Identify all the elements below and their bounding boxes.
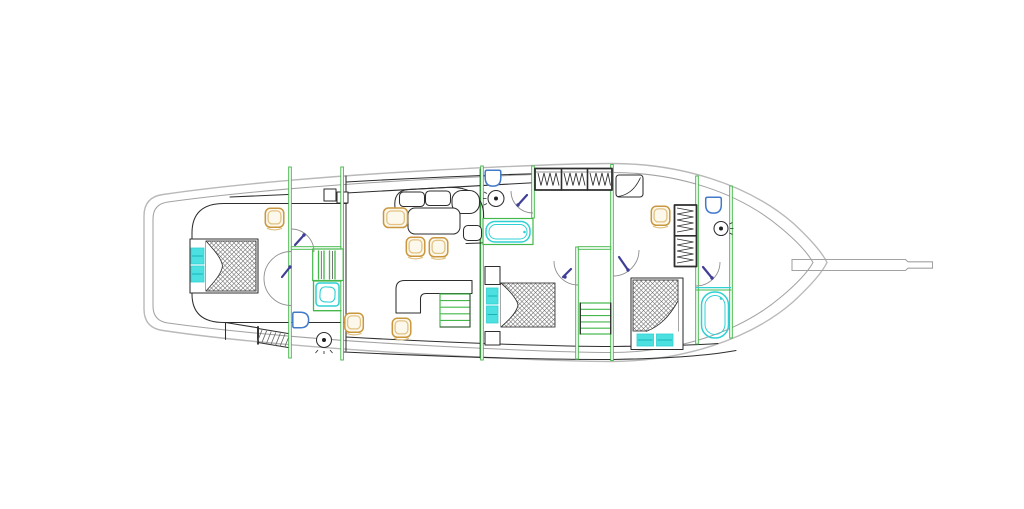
- dining-table: [408, 208, 460, 234]
- vanity-seat: [616, 175, 643, 197]
- yacht-floor-plan: Motor sailing yacht — lower deck floor p…: [0, 0, 1024, 509]
- washbasin: [714, 222, 734, 236]
- deck-line-aft-top: [230, 195, 288, 198]
- bathtub: [483, 219, 533, 245]
- double-bed: [485, 267, 555, 346]
- staircase: [580, 303, 611, 334]
- stairwell: [554, 250, 639, 334]
- partition-wall: [578, 247, 610, 250]
- bowsprit: [792, 260, 933, 271]
- nightstand: [485, 267, 500, 285]
- forward-bathroom: [696, 197, 734, 338]
- stool: [651, 206, 670, 228]
- bulkhead: [289, 167, 292, 358]
- swing-door: [264, 252, 292, 306]
- hull: [144, 164, 933, 362]
- shower: [314, 281, 342, 311]
- staircase: [313, 249, 344, 281]
- armchair: [265, 208, 284, 230]
- forward-cabin: [616, 175, 697, 350]
- floor-plan-canvas: Motor sailing yacht — lower deck floor p…: [0, 0, 1024, 509]
- armchair: [384, 208, 408, 228]
- galley-shelves: [440, 294, 470, 327]
- deck-storage-box: [324, 189, 336, 201]
- salon: [345, 187, 484, 340]
- washbasin: [483, 191, 504, 207]
- washbasin: [316, 333, 333, 355]
- nightstand: [485, 332, 500, 346]
- aft-cabin: [190, 208, 284, 293]
- mid-bathroom: [483, 170, 533, 244]
- chair: [406, 237, 425, 259]
- chair: [345, 313, 364, 335]
- bulkhead: [481, 166, 484, 360]
- hanging-wardrobe: [535, 169, 612, 191]
- chair: [392, 318, 411, 340]
- swing-door: [511, 191, 533, 213]
- toilet: [293, 312, 309, 328]
- bulkhead: [730, 186, 733, 338]
- swing-door: [554, 261, 578, 285]
- bulkhead: [576, 247, 579, 359]
- swing-door: [696, 262, 720, 286]
- swing-door: [613, 250, 639, 276]
- bulkhead: [532, 166, 535, 218]
- toilet: [706, 197, 722, 213]
- hanging-wardrobe: [675, 205, 697, 267]
- double-bed: [631, 278, 683, 350]
- chair: [429, 238, 448, 260]
- double-bed: [190, 239, 258, 293]
- toilet: [485, 170, 501, 186]
